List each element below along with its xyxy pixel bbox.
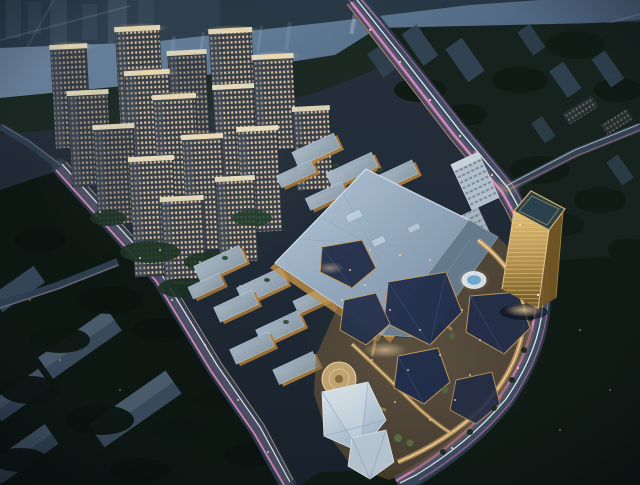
aerial-rendering-image xyxy=(0,0,640,485)
scene-canvas xyxy=(0,0,640,485)
painted-scene xyxy=(0,0,640,485)
vignette xyxy=(0,0,640,485)
